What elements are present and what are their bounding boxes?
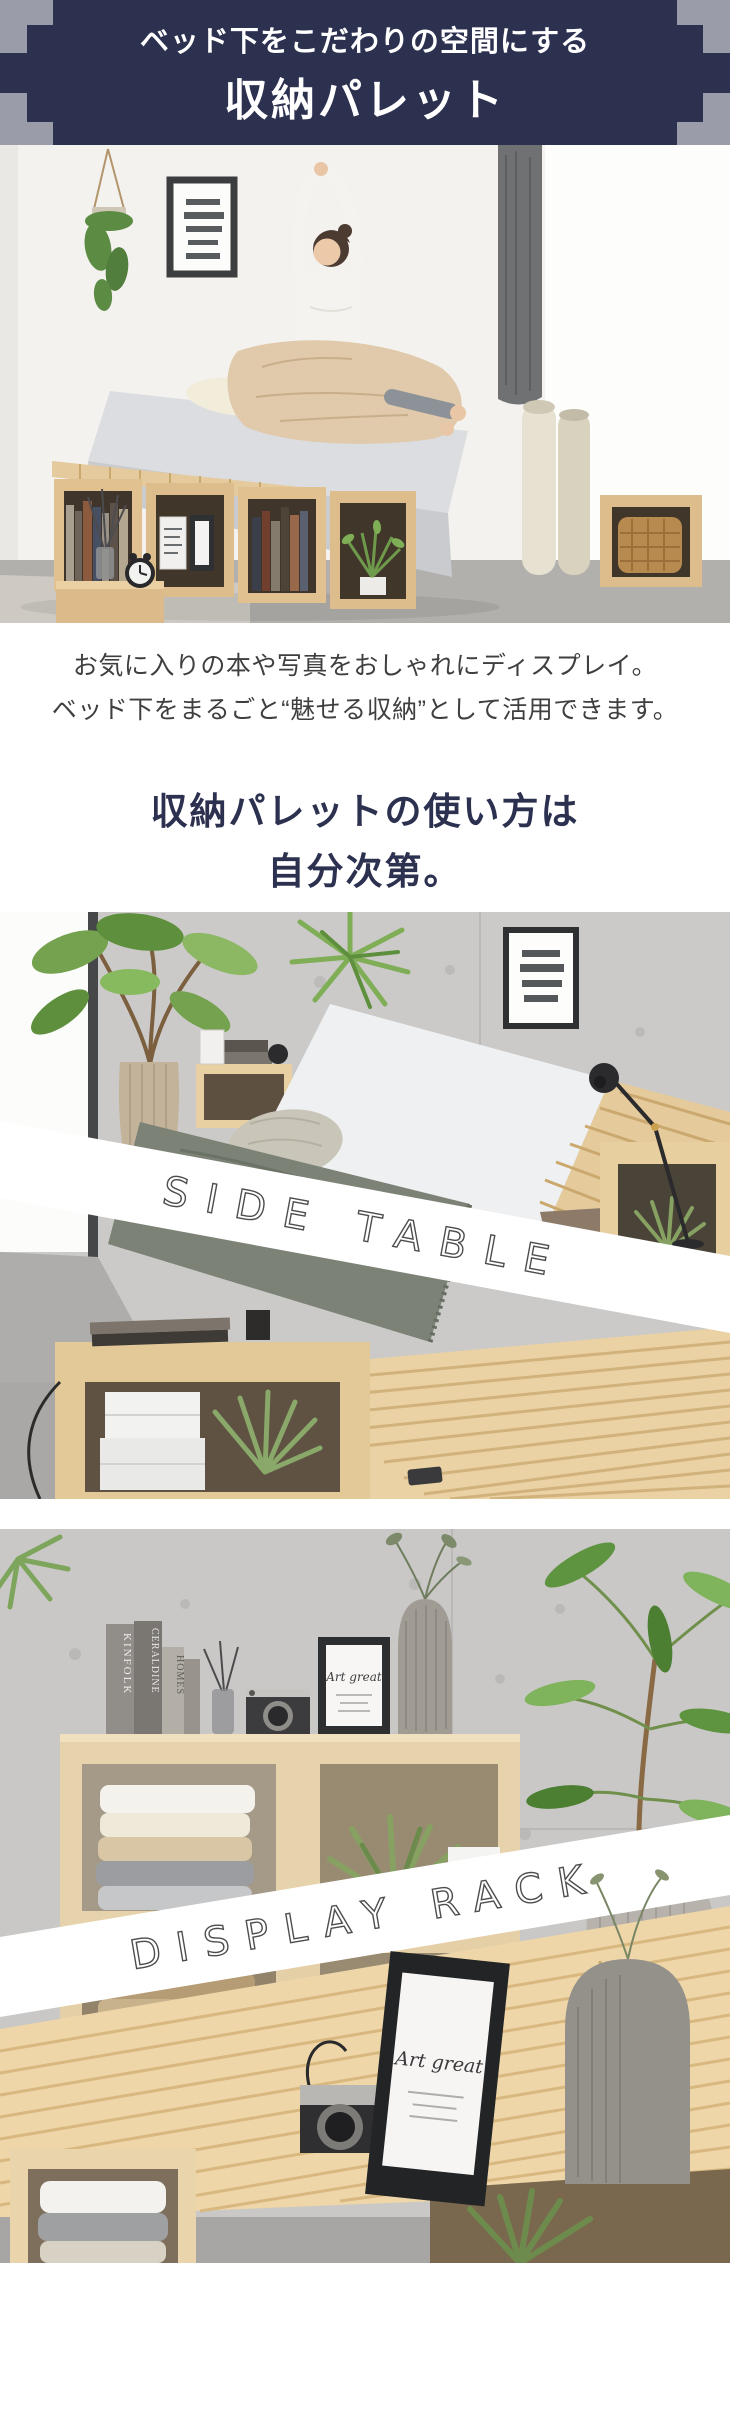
wall-art-frame: [170, 180, 234, 274]
art-frame-large: Art great: [365, 1951, 510, 2206]
storage-cube-books-2: [238, 487, 326, 603]
page: ベッド下をこだわりの空間にする 収納パレット: [0, 0, 730, 2409]
towel-cube: [10, 2149, 196, 2263]
book-spine-2: CERALDINE: [149, 1628, 160, 1694]
usage-heading-line-1: 収納パレットの使い方は: [151, 791, 580, 832]
art-frame-small-text: Art great: [325, 1670, 382, 1684]
section-gap: [0, 1499, 730, 1529]
wall-art-frame: [506, 930, 576, 1026]
rolled-mats: [522, 400, 590, 575]
bedside-table: [56, 581, 164, 623]
basket-cube: [600, 495, 702, 587]
usage-heading: 収納パレットの使い方は 自分次第。: [0, 782, 730, 902]
intro-line-1: お気に入りの本や写真をおしゃれにディスプレイ。: [0, 644, 730, 688]
bottom-whitespace: [0, 2263, 730, 2409]
camera: [246, 1689, 310, 1734]
storage-cube-plant: [330, 491, 416, 609]
hero-photo: [0, 145, 730, 623]
storage-cube-frames: [146, 483, 234, 597]
header-title: 収納パレット: [224, 64, 506, 128]
header-subtitle: ベッド下をこだわりの空間にする: [140, 18, 590, 60]
usage-heading-line-2: 自分次第。: [268, 851, 463, 892]
display-rack-photo: KINFOLK CERALDINE HOMES: [0, 1529, 730, 2263]
book-spine-3: HOMES: [174, 1655, 185, 1695]
side-table-photo: SIDE TABLE: [0, 912, 730, 1499]
book-spine-1: KINFOLK: [121, 1633, 133, 1695]
curtain: [498, 145, 542, 405]
alarm-clock: [125, 553, 155, 588]
intro-line-2: ベッド下をまるごと“魅せる収納”として活用できます。: [0, 688, 730, 732]
art-frame-small: Art great: [318, 1637, 390, 1734]
header-banner: ベッド下をこだわりの空間にする 収納パレット: [0, 0, 730, 145]
intro-section: お気に入りの本や写真をおしゃれにディスプレイ。 ベッド下をまるごと“魅せる収納”…: [0, 623, 730, 912]
folded-clothes-stack: [96, 1785, 255, 1910]
